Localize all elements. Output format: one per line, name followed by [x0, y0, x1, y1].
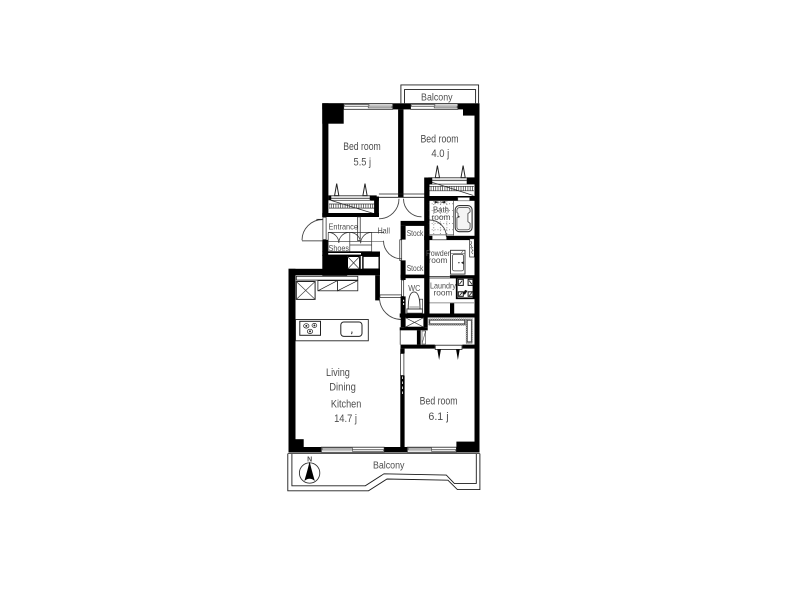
- svg-text:6.1 j: 6.1 j: [428, 411, 448, 423]
- svg-text:Hall: Hall: [377, 225, 390, 235]
- svg-text:Balcony: Balcony: [373, 461, 405, 472]
- svg-text:Bed room: Bed room: [420, 395, 458, 407]
- svg-text:Bed room: Bed room: [420, 133, 458, 145]
- svg-text:Stock: Stock: [407, 263, 424, 273]
- svg-text:Balcony: Balcony: [421, 93, 453, 104]
- svg-text:Bed room: Bed room: [343, 141, 381, 153]
- svg-text:Stock: Stock: [407, 228, 424, 238]
- svg-text:WC: WC: [408, 283, 420, 293]
- svg-text:Entrance: Entrance: [328, 223, 358, 232]
- svg-text:Dining: Dining: [329, 382, 356, 394]
- svg-text:4.0 j: 4.0 j: [431, 148, 449, 160]
- svg-text:Kitchen: Kitchen: [331, 398, 361, 410]
- svg-text:5.5 j: 5.5 j: [354, 156, 372, 168]
- svg-text:room: room: [429, 255, 448, 265]
- svg-text:14.7 j: 14.7 j: [334, 413, 357, 425]
- svg-text:Living: Living: [326, 367, 350, 379]
- svg-text:room: room: [434, 288, 453, 298]
- svg-text:N: N: [307, 456, 312, 463]
